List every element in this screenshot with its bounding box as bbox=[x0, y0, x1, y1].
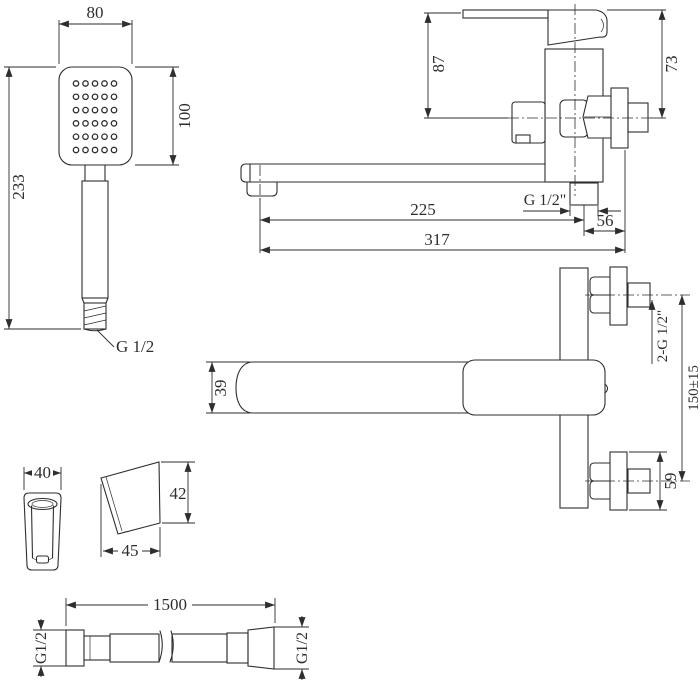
bottom-outlet-thread bbox=[570, 183, 598, 205]
outlet-thread-label: G 1/2" bbox=[524, 192, 567, 209]
lever-handle bbox=[463, 10, 548, 18]
hose-corrugation-right bbox=[172, 634, 227, 662]
dim-head-width: 80 bbox=[59, 3, 132, 64]
hose-thread-left: G1/2 bbox=[33, 619, 66, 677]
hose-view: 1500 G1/2 G1/2 bbox=[33, 595, 311, 680]
dim-233-label: 233 bbox=[9, 174, 28, 200]
hose-break-lines bbox=[159, 631, 173, 662]
dim-56-label: 56 bbox=[597, 211, 614, 230]
dim-head-height: 100 bbox=[135, 67, 194, 165]
hose-nut-right bbox=[227, 633, 248, 663]
hose-fitting-left bbox=[66, 630, 84, 666]
dim-317: 317 bbox=[260, 230, 625, 250]
hose-corrugation-left bbox=[110, 634, 159, 662]
bracket-views: 40 42 45 bbox=[24, 462, 195, 570]
bracket-front-view bbox=[24, 493, 61, 570]
hose-thread-right: G1/2 bbox=[274, 616, 311, 680]
diverter-nub bbox=[516, 135, 530, 143]
dim-150-label: 150±15 bbox=[686, 365, 700, 411]
dim-39-label: 39 bbox=[211, 380, 230, 397]
dim-225-label: 225 bbox=[410, 200, 436, 219]
handle-thread bbox=[84, 303, 106, 331]
hose-thread-left-label: G1/2 bbox=[33, 632, 50, 664]
dim-45-label: 45 bbox=[122, 541, 139, 560]
technical-drawing-page: 80 100 233 G 1/2 bbox=[0, 0, 700, 700]
dim-59-label: 59 bbox=[661, 473, 680, 490]
dim-1500: 1500 bbox=[66, 595, 275, 626]
wall-thread-callout: 2-G 1/2" bbox=[652, 300, 671, 364]
mixer-body-top-view bbox=[463, 360, 605, 415]
hose-thread-right-label: G1/2 bbox=[294, 632, 311, 664]
handle-cap bbox=[548, 10, 607, 45]
dim-87-label: 87 bbox=[429, 55, 448, 73]
wall-thread-label: 2-G 1/2" bbox=[655, 310, 671, 362]
aerator-outlet bbox=[247, 182, 277, 196]
dim-42: 42 bbox=[161, 462, 195, 523]
dim-73-label: 73 bbox=[662, 56, 681, 73]
dim-40: 40 bbox=[24, 463, 61, 490]
dim-40-label: 40 bbox=[34, 463, 51, 482]
dim-39: 39 bbox=[206, 362, 250, 413]
eccentric-connector-upper bbox=[585, 267, 690, 325]
dim-42-label: 42 bbox=[170, 484, 187, 503]
bracket-side-view bbox=[101, 462, 160, 534]
faucet-top-view: 39 2-G 1/2" 150±15 59 bbox=[206, 267, 700, 510]
hand-shower-view: 80 100 233 G 1/2 bbox=[4, 3, 194, 356]
hose-ferrule bbox=[84, 636, 110, 660]
technical-drawing-canvas: 80 100 233 G 1/2 bbox=[0, 0, 700, 700]
dim-150: 150±15 bbox=[682, 295, 700, 481]
spout-tip bbox=[241, 164, 250, 182]
hose-cone-right bbox=[248, 627, 274, 669]
dim-59: 59 bbox=[629, 452, 680, 510]
dim-1500-label: 1500 bbox=[153, 595, 187, 614]
dim-87: 87 bbox=[424, 13, 508, 118]
handshower-thread-label: G 1/2 bbox=[116, 337, 154, 356]
shower-handle bbox=[82, 181, 108, 298]
handshower-thread-callout: G 1/2 bbox=[97, 330, 154, 356]
threaded-pipe bbox=[628, 103, 648, 132]
dim-317-label: 317 bbox=[424, 230, 450, 249]
faucet-side-view: 87 73 G 1/2" 225 56 bbox=[241, 4, 681, 253]
dim-80-label: 80 bbox=[87, 3, 104, 22]
shower-head bbox=[59, 67, 132, 165]
dim-100-label: 100 bbox=[175, 103, 194, 129]
